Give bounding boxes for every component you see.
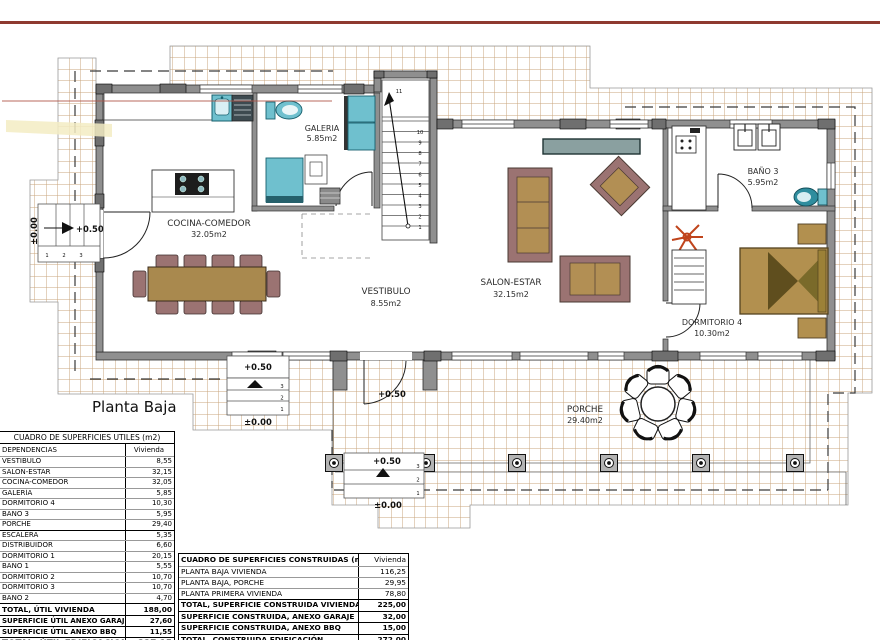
stair-step-number: 3 xyxy=(79,253,82,259)
room-cocina-area: 32.05m2 xyxy=(191,230,227,239)
sofa-3seat xyxy=(508,168,552,262)
col-vivienda: Vivienda xyxy=(126,444,174,456)
stair-step-number: 3 xyxy=(416,464,419,470)
table-row: VESTIBULO8,55 xyxy=(0,456,174,467)
dining-table xyxy=(148,267,266,301)
room-vestibulo: VESTIBULO xyxy=(361,287,410,297)
stair-step-number: 2 xyxy=(280,396,283,402)
plan-title: Planta Baja xyxy=(92,398,177,416)
total-row: SUPERFICIE ÚTIL ANEXO GARAJE 27,60 xyxy=(0,615,174,626)
table-row: BAÑO 35,95 xyxy=(0,509,174,520)
table-body: VESTIBULO8,55SALON-ESTAR32,15COCINA-COME… xyxy=(0,456,174,603)
room-bano3: BAÑO 3 xyxy=(748,166,779,176)
stair-step-number: 2 xyxy=(418,214,421,220)
table-row: PLANTA BAJA VIVIENDA116,25 xyxy=(179,566,408,577)
table-row: GALERÍA5,85 xyxy=(0,488,174,499)
total-row: SUPERFICIE ÚTIL ANEXO BBQ 11,55 xyxy=(0,626,174,637)
table-header: CUADRO DE SUPERFICIES CONSTRUIDAS (m2) V… xyxy=(179,554,408,566)
nightstand xyxy=(798,318,826,338)
table-row: PLANTA PRIMERA VIVIENDA78,80 xyxy=(179,588,408,599)
table-row: PLANTA BAJA, PORCHE29,95 xyxy=(179,577,408,588)
table-row: COCINA-COMEDOR32,05 xyxy=(0,477,174,488)
cooktop xyxy=(175,173,209,195)
stair-step-number: 2 xyxy=(62,253,65,259)
table-header: DEPENDENCIAS Vivienda xyxy=(0,444,174,456)
stair-step-number: 1 xyxy=(416,491,419,497)
total-row: SUPERFICIE CONSTRUIDA, ANEXO GARAJE 32,0… xyxy=(179,611,408,623)
stair-step-number: 3 xyxy=(280,384,283,390)
col-dependencias: DEPENDENCIAS xyxy=(0,444,126,456)
total-row: TOTAL, CONSTRUIDA EDIFICACIÓN 272,00 xyxy=(179,634,408,640)
kitchen-counter xyxy=(104,93,253,121)
stair-step-number: 5 xyxy=(418,183,421,189)
bed xyxy=(740,248,828,314)
stair-step-number: 1 xyxy=(418,225,421,231)
room-vestibulo-area: 8.55m2 xyxy=(371,299,402,308)
useful-areas-table: CUADRO DE SUPERFICIES UTILES (m2) DEPEND… xyxy=(0,431,175,640)
stair-step-number: 9 xyxy=(418,141,421,147)
col-vivienda: Vivienda xyxy=(359,554,408,566)
water-heater xyxy=(266,158,303,203)
level-entry-up: +0.50 xyxy=(373,456,401,466)
stair-step-number: 6 xyxy=(418,172,421,178)
table-title: CUADRO DE SUPERFICIES UTILES (m2) xyxy=(0,432,174,444)
toilet xyxy=(266,101,302,119)
room-galeria-area: 5.85m2 xyxy=(307,134,338,143)
main-staircase: 1234567891011 xyxy=(382,80,429,240)
drawers xyxy=(320,188,340,204)
table-row: BAÑO 15,55 xyxy=(0,561,174,572)
stair-step-number: 1 xyxy=(280,407,283,413)
porch-table xyxy=(641,387,675,421)
level-left-base: ±0.00 xyxy=(29,217,39,245)
total-row: TOTAL, SUPERFICIE CONSTRUIDA VIVIENDA 22… xyxy=(179,599,408,611)
built-areas-table: CUADRO DE SUPERFICIES CONSTRUIDAS (m2) V… xyxy=(178,553,409,640)
toilet xyxy=(794,188,827,206)
table-row: DORMITORIO 120,15 xyxy=(0,551,174,562)
stair-step-number: 2 xyxy=(416,478,419,484)
room-dorm4-area: 10.30m2 xyxy=(694,329,730,338)
table-row: BAÑO 24,70 xyxy=(0,593,174,604)
room-porche-area: 29.40m2 xyxy=(567,416,603,425)
room-cocina: COCINA-COMEDOR xyxy=(167,219,250,229)
closet xyxy=(672,250,706,304)
washer-stack xyxy=(344,96,375,150)
room-dorm4: DORMITORIO 4 xyxy=(682,318,742,327)
level-rear-base: ±0.00 xyxy=(244,417,272,427)
room-bano3-area: 5.95m2 xyxy=(748,178,779,187)
level-left-up: +0.50 xyxy=(76,224,104,234)
table-row: ESCALERA5,35 xyxy=(0,530,174,541)
stair-step-number: 11 xyxy=(396,89,403,95)
nightstand xyxy=(798,224,826,244)
level-entry-landing: +0.50 xyxy=(378,389,406,399)
room-porche: PORCHE xyxy=(567,405,603,415)
stair-step-number: 7 xyxy=(418,162,421,168)
table-row: DISTRIBUIDOR6,60 xyxy=(0,540,174,551)
room-salon-area: 32.15m2 xyxy=(493,290,529,299)
stair-step-number: 3 xyxy=(418,204,421,210)
utility-cabinet xyxy=(672,126,706,210)
table-title: CUADRO DE SUPERFICIES CONSTRUIDAS (m2) xyxy=(179,554,359,566)
level-rear-up: +0.50 xyxy=(244,362,272,372)
kitchen-island xyxy=(152,170,234,212)
table-row: DORMITORIO 210,70 xyxy=(0,572,174,583)
level-entry-base: ±0.00 xyxy=(374,500,402,510)
sink-drainer xyxy=(232,95,253,121)
stair-step-number: 1 xyxy=(45,253,48,259)
shower-tray xyxy=(305,155,327,184)
table-row: DORMITORIO 310,70 xyxy=(0,582,174,593)
table-row: DORMITORIO 410,30 xyxy=(0,498,174,509)
table-row: PORCHE29,40 xyxy=(0,519,174,530)
stair-step-number: 10 xyxy=(417,130,424,136)
table-body: PLANTA BAJA VIVIENDA116,25PLANTA BAJA, P… xyxy=(179,566,408,599)
floorplan-sheet: 1234567891011 321 321 123 xyxy=(0,0,880,640)
stair-step-number: 8 xyxy=(418,151,421,157)
tv-console xyxy=(543,139,640,154)
total-row: TOTAL, ÚTIL VIVIENDA 188,00 xyxy=(0,603,174,615)
table-row: SALON-ESTAR32,15 xyxy=(0,467,174,478)
sofa-2seat xyxy=(560,256,630,302)
room-salon: SALON-ESTAR xyxy=(481,278,542,288)
room-galeria: GALERIA xyxy=(305,124,340,133)
total-row: SUPERFICIE CONSTRUIDA, ANEXO BBQ 15,00 xyxy=(179,622,408,634)
